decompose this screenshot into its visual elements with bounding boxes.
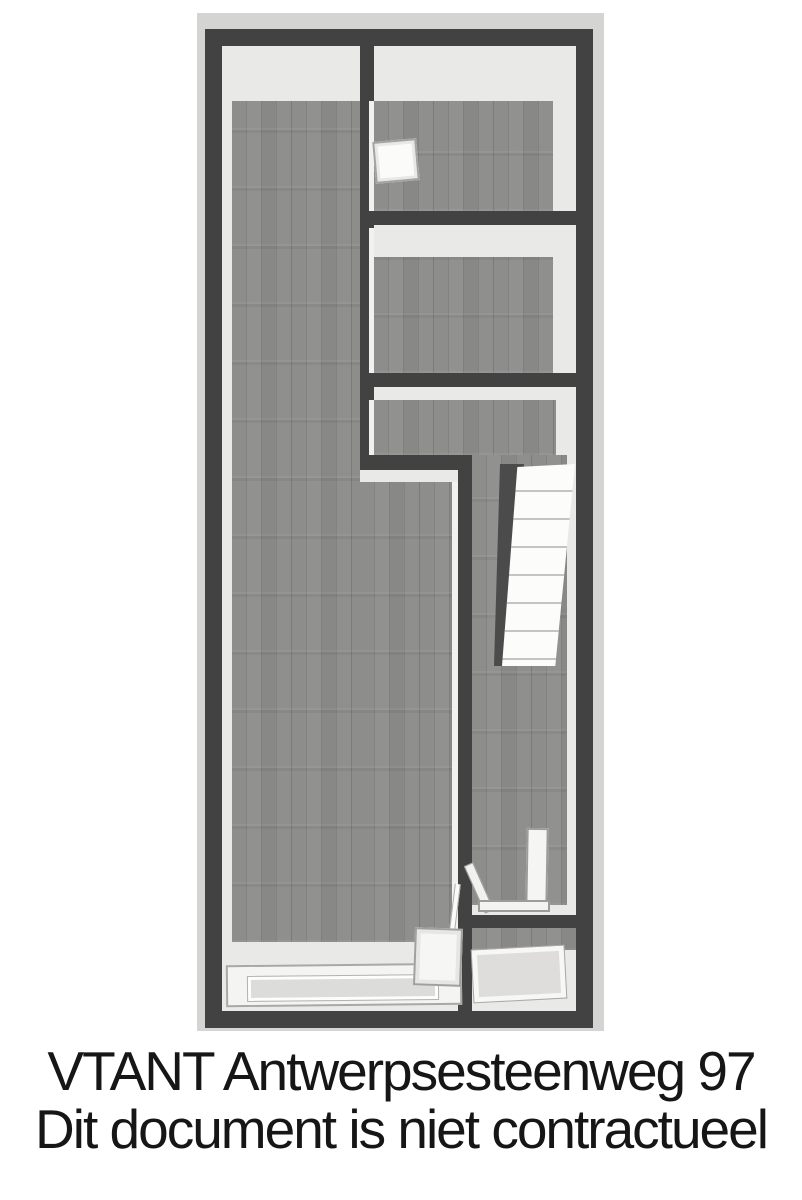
floor-plan (197, 13, 604, 1031)
caption-line-1: VTANT Antwerpsesteenweg 97 (0, 1042, 802, 1100)
wall-face-sliver (452, 482, 458, 940)
shower-tray (472, 946, 567, 1003)
caption: VTANT Antwerpsesteenweg 97 Dit document … (0, 1042, 802, 1159)
wall-horizontal-2 (374, 373, 576, 387)
wall-fixture-panel (372, 138, 419, 184)
door-sliver-middle-room (369, 228, 374, 373)
partition-panel-vertical (525, 828, 548, 910)
door-sliver-hall (369, 400, 374, 455)
main-room-floor-lower (360, 482, 458, 942)
middle-room-floor (374, 257, 553, 373)
entrance-door-panel (413, 927, 463, 987)
storefront-window-pane (248, 975, 438, 1001)
caption-line-2: Dit document is niet contractueel (0, 1100, 802, 1158)
main-room-floor-upper (232, 101, 360, 942)
hallway-floor-upper (374, 400, 556, 455)
plan-interior (222, 46, 576, 1011)
wall-horizontal-1 (374, 211, 576, 225)
page: VTANT Antwerpsesteenweg 97 Dit document … (0, 0, 802, 1200)
wall-jog (360, 455, 472, 470)
partition-sill (478, 900, 550, 912)
wall-horizontal-3 (458, 915, 576, 928)
